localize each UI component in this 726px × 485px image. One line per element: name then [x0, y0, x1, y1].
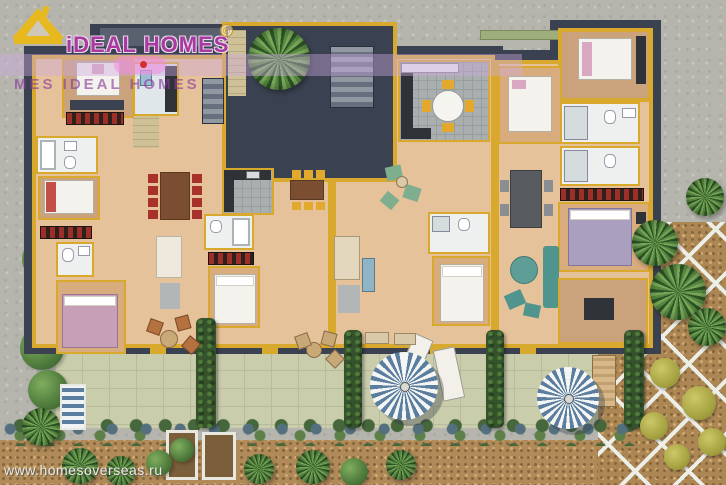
chair-gray: [500, 204, 509, 216]
chair-red: [148, 210, 158, 219]
dining-table: [290, 180, 324, 200]
toilet: [210, 220, 222, 233]
chair-yellow: [465, 100, 474, 112]
wardrobe: [636, 36, 646, 84]
planter-strip: [480, 30, 565, 40]
sofa-beige: [334, 236, 360, 280]
shower: [432, 216, 450, 232]
parasol: [370, 352, 438, 420]
palm-plant: [244, 454, 274, 484]
planter-box: [202, 432, 236, 480]
parasol: [537, 367, 599, 429]
rug: [338, 285, 360, 313]
door-threshold: [262, 346, 278, 354]
ideal-homes-logo: iDEAL HOMES ®: [8, 6, 238, 64]
floor-plan-render: MES IDEAL HOMES iDEAL HOMES ® www.homeso…: [0, 0, 726, 485]
palm-plant: [296, 450, 330, 484]
lounge-chair-blue: [362, 258, 375, 292]
chair-red: [148, 174, 158, 183]
logo-registered-mark: ®: [220, 24, 233, 37]
planter-tree: [170, 438, 194, 462]
hedge: [344, 330, 362, 428]
toilet: [62, 248, 74, 262]
chair-yellow: [304, 170, 313, 178]
shower: [564, 150, 588, 182]
hedge: [486, 330, 504, 428]
chair-yellow: [442, 80, 454, 89]
rug-teal-round: [510, 256, 538, 284]
chair-yellow: [422, 100, 431, 112]
sofa-white: [156, 236, 182, 278]
chair-yellow: [304, 202, 313, 210]
chair-red: [192, 198, 202, 207]
dining-table: [160, 172, 190, 220]
bush-yellow: [682, 386, 716, 420]
pillow-pink: [512, 80, 526, 89]
chair-yellow: [316, 202, 325, 210]
pillow-pink: [582, 42, 592, 76]
wardrobe-shelves: [66, 112, 124, 125]
watermark-text-tile: MES IDEAL HOMES: [14, 76, 200, 93]
palm-tree: [22, 408, 60, 446]
bench-tan: [394, 333, 416, 345]
wardrobe-shelves: [208, 252, 254, 265]
toilet: [458, 218, 470, 231]
pillow: [442, 266, 482, 277]
door-threshold: [520, 346, 536, 354]
table-dark: [584, 298, 614, 320]
staircase-small: [202, 78, 224, 124]
palm-tree: [688, 308, 726, 346]
sink: [78, 246, 90, 256]
palm-tree: [686, 178, 724, 216]
logo-text: iDEAL HOMES: [66, 32, 229, 58]
striped-lounger: [60, 384, 86, 430]
bathtub: [40, 140, 56, 170]
dining-table-dark: [510, 170, 542, 228]
chair-yellow: [316, 170, 325, 178]
sofa-teal: [543, 246, 559, 308]
bush-yellow: [640, 412, 668, 440]
chair-red: [148, 198, 158, 207]
pillow: [216, 276, 254, 286]
pillow: [64, 296, 116, 306]
hedge: [624, 330, 644, 428]
kitchen-counter: [401, 128, 431, 139]
chair-yellow: [292, 202, 301, 210]
toilet: [64, 156, 76, 169]
bush-yellow: [650, 358, 680, 388]
chair-gray: [544, 204, 553, 216]
wardrobe-shelves: [560, 188, 644, 201]
palm-plant: [386, 450, 416, 480]
toilet: [604, 110, 616, 124]
shrub: [340, 458, 368, 485]
chair-red: [192, 174, 202, 183]
side-table: [396, 176, 408, 188]
chair-gray: [544, 180, 553, 192]
shower: [564, 106, 588, 140]
logo-house-base: [14, 38, 62, 44]
sink: [622, 108, 636, 118]
round-table: [432, 90, 464, 122]
bush-yellow: [698, 428, 726, 456]
chair-yellow: [292, 170, 301, 178]
pillow-red: [46, 182, 56, 212]
door-threshold: [150, 346, 166, 354]
wardrobe-shelves: [40, 226, 92, 239]
hedge: [196, 318, 216, 428]
bathtub: [232, 218, 250, 246]
patio-table: [160, 330, 178, 348]
rug: [160, 283, 180, 309]
chair-red: [192, 186, 202, 195]
toilet: [604, 154, 616, 168]
kitchen-counter: [401, 73, 413, 133]
palm-tree: [632, 220, 678, 266]
bench-tan: [365, 332, 389, 344]
website-watermark: www.homesoverseas.ru: [4, 462, 163, 478]
chair-gray: [500, 180, 509, 192]
chair-yellow: [442, 123, 454, 132]
logo-house-icon-inner: [26, 20, 50, 36]
chair-red: [192, 210, 202, 219]
rug-dark: [70, 100, 124, 110]
bush-yellow: [664, 444, 690, 470]
chair-red: [148, 186, 158, 195]
pillow: [570, 210, 630, 220]
sink: [64, 141, 77, 151]
stove: [246, 171, 260, 179]
